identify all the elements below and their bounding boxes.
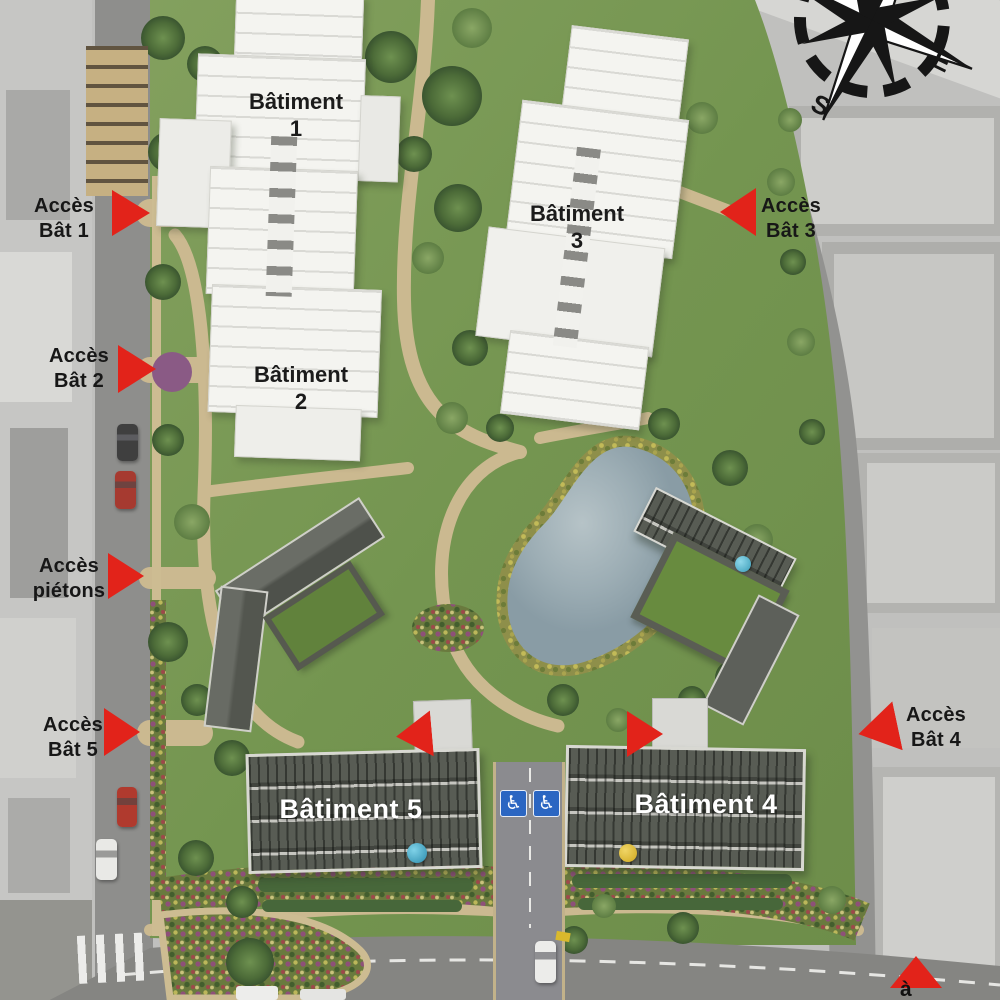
partial-cutoff-label: à [900, 978, 912, 1000]
parked-car [117, 787, 137, 827]
building-3-label: Bâtiment 3 [507, 200, 647, 254]
access-bat2-label: Accès Bât 2 [29, 344, 129, 394]
building-5-label: Bâtiment 5 [261, 794, 441, 825]
handicap-parking-icon: ♿ [500, 790, 527, 817]
access-bat1-label: Accès Bât 1 [14, 194, 114, 244]
site-plan: ♿ ♿ E S Bâtiment 1 B [0, 0, 1000, 1000]
parked-car [96, 839, 117, 880]
parked-car [117, 424, 138, 461]
access-pietons-label: Accès piétons [19, 554, 119, 604]
left-city-blocks [0, 0, 92, 1000]
car-on-driveway [535, 941, 556, 983]
blue-umbrella [735, 556, 751, 572]
parked-car [115, 471, 136, 509]
building-4-label: Bâtiment 4 [616, 789, 796, 820]
crosswalk [77, 932, 153, 984]
vehicle-bottom-edge [300, 989, 346, 1000]
building-2-label: Bâtiment 2 [231, 361, 371, 415]
access-bat3-label: Accès Bât 3 [741, 194, 841, 244]
handicap-parking-icon: ♿ [533, 790, 560, 817]
yellow-umbrella [619, 844, 637, 862]
blue-umbrella [407, 843, 427, 863]
vehicle-bottom-edge [236, 986, 278, 1000]
lane-marking [529, 768, 531, 928]
balcony-column [266, 136, 298, 297]
parking-strip [86, 46, 148, 196]
building-1-label: Bâtiment 1 [226, 88, 366, 142]
